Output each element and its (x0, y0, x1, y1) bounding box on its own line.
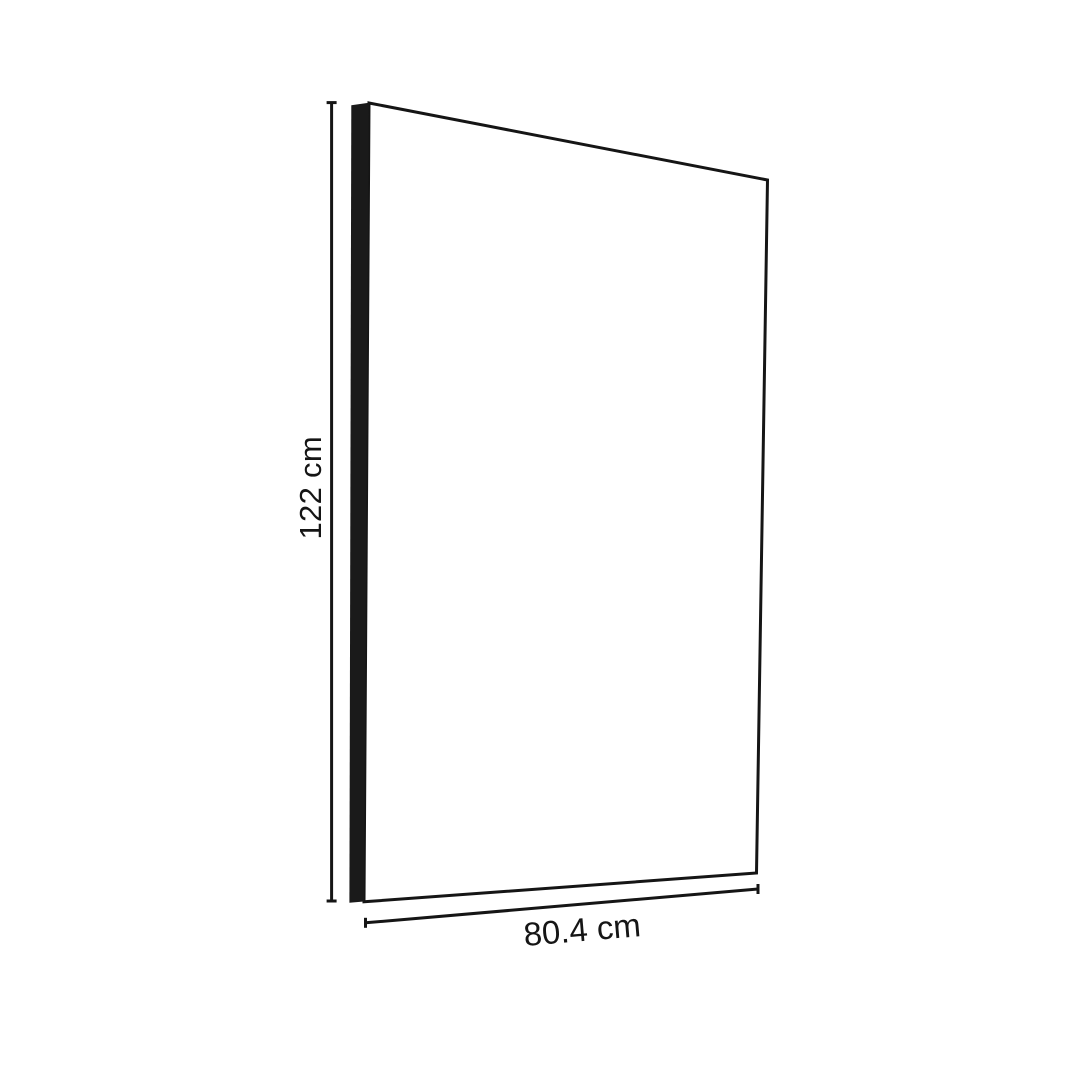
svg-text:122 cm: 122 cm (293, 436, 328, 539)
